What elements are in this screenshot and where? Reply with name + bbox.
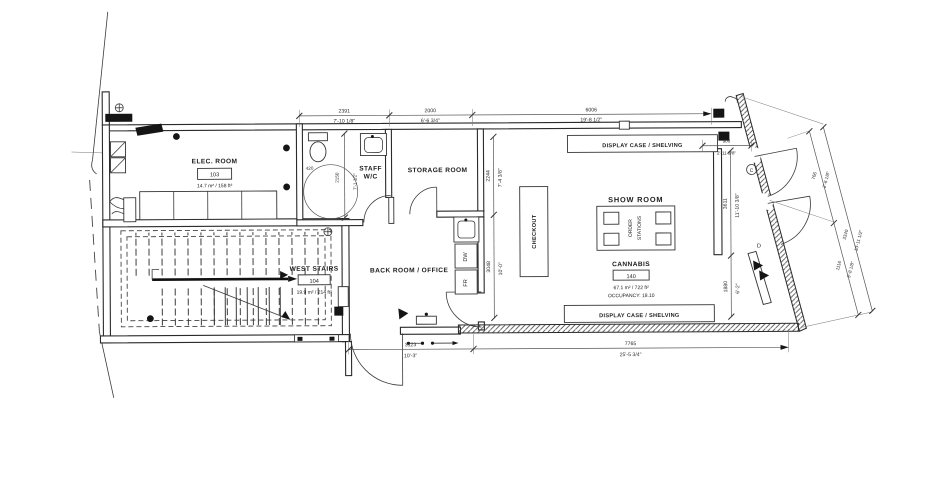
dim-label: 11'-10 3/8" (735, 193, 741, 218)
wc-sink-faucet (371, 135, 374, 138)
dim-label: 2'-6 1/8" (822, 171, 831, 189)
storage-door-swing (410, 187, 437, 214)
column-dot (173, 133, 180, 140)
entry-door-swing (350, 333, 402, 385)
wall-elec-right (296, 124, 303, 220)
wall-showroom-bottom (458, 323, 798, 333)
door-tag-c: C (750, 168, 754, 174)
dim-label: 2000 (424, 108, 436, 114)
dim-arrow (781, 345, 789, 350)
dim-label: 19'-8 1/2" (580, 117, 602, 123)
order-station (656, 212, 671, 224)
dim-label: 6006 (585, 107, 597, 113)
dishwasher-label: DW (463, 252, 469, 262)
dim-label: 420 (306, 166, 314, 171)
window-display-case (748, 251, 771, 304)
dim-label: 6'-6 3/4" (421, 118, 440, 124)
stair-arrowhead (288, 276, 297, 282)
elec-room-name: ELEC. ROOM (192, 158, 238, 165)
elec-panel-3 (124, 198, 136, 222)
dim-label: 2'-11 3/8" (717, 151, 736, 156)
west-stairs-number: 104 (309, 279, 318, 285)
dim-label: 7'-10 1/8" (333, 119, 355, 125)
ext-line (770, 200, 834, 222)
dim-label: 7'-1 1/2" (353, 173, 358, 190)
staff-wc-label-2: W/C (364, 173, 378, 180)
elec-room-number: 103 (210, 172, 219, 178)
dim-label: 3123 (405, 342, 417, 348)
cannabis-number: 140 (626, 274, 635, 280)
roof-access-bar (105, 114, 132, 122)
ext-line (741, 96, 823, 124)
wall-stairs-right (342, 219, 350, 342)
staff-wc-label-1: STAFF (359, 165, 382, 172)
column-dot (283, 145, 290, 152)
wall-showroom-fin (713, 149, 722, 255)
dim-line-fin (730, 151, 731, 317)
toilet-tank (308, 133, 327, 141)
wall-backroom-bottom (400, 327, 460, 334)
floor-plan-sheet: 2391 7'-10 1/8" 2000 6'-6 3/4" 6006 19'-… (0, 0, 930, 500)
device-box (334, 307, 343, 316)
elec-counter (140, 191, 277, 220)
west-stairs-name: WEST STAIRS (290, 266, 339, 273)
stair-treads-lower-solid (205, 287, 290, 325)
small-table (416, 316, 436, 324)
wall-right-slanted (736, 93, 806, 331)
dim-tick (869, 308, 875, 314)
dim-line-right-outer (823, 127, 872, 311)
dim-label: 1116 (835, 260, 842, 271)
dim-label: 2391 (338, 109, 350, 115)
cannabis-occupancy: OCCUPANCY: 18.10 (608, 293, 655, 299)
order-stations-label-2: STATIONS (637, 215, 643, 240)
wc-door-leaf (389, 197, 394, 223)
exit-door-a-swing (767, 148, 797, 196)
display-case-top-label: DISPLAY CASE / SHELVING (602, 143, 682, 149)
dim-tick (820, 124, 826, 130)
revision-cloud (725, 97, 737, 103)
ext-line (802, 312, 872, 327)
door-tag-d: D (757, 243, 761, 249)
dim-label: 25'-5 3/4" (620, 352, 642, 358)
property-line-hook (92, 160, 97, 174)
column-dot (283, 184, 290, 191)
dim-tick (855, 312, 861, 318)
show-room-label: SHOW ROOM (608, 195, 663, 204)
dim-label: 10'-3" (404, 353, 417, 359)
dim-label: 3340 (842, 229, 850, 241)
wall-storage-right (477, 129, 483, 212)
dim-label: 766 (811, 171, 818, 180)
wc-door-swing (364, 195, 391, 222)
dim-label: 7765 (625, 341, 637, 347)
order-station (656, 233, 671, 245)
dim-label: 2244 (486, 170, 492, 182)
backroom-door-swing (446, 292, 481, 327)
wall-wc-bottom (297, 220, 363, 226)
dim-arrow (703, 111, 711, 116)
floor-drain-symbol (398, 308, 408, 319)
column-on-wall (619, 121, 629, 129)
checkout-label: CHECKOUT (532, 214, 538, 248)
storage-room-label: STORAGE ROOM (408, 167, 468, 174)
dim-label: 1880 (723, 281, 729, 293)
cannabis-name: CANNABIS (612, 261, 650, 268)
order-station (604, 233, 619, 245)
dim-label: 7'-4 3/8" (498, 168, 504, 187)
column-square (713, 109, 724, 118)
setback-line (71, 152, 102, 153)
dim-label: 10'-11 1/2" (853, 229, 863, 251)
dim-label: 3048 (486, 261, 492, 273)
dim-tick (806, 128, 812, 134)
dim-tick (831, 220, 837, 226)
toilet-bowl (310, 142, 326, 162)
order-station (604, 212, 619, 224)
dim-line-top (299, 114, 711, 116)
back-room-label: BACK ROOM / OFFICE (370, 267, 449, 274)
stair-stringer (152, 279, 288, 280)
threshold-mark-right (329, 337, 334, 341)
backroom-sink-faucet (464, 218, 467, 221)
hose-cabinet (338, 287, 348, 307)
wc-turning-circle (304, 165, 358, 219)
dim-label: 3'-8 1/8" (846, 260, 855, 278)
west-stairs-area: 19.9 m² / 214 ft² (297, 290, 333, 296)
dim-label: 3611 (723, 198, 729, 209)
small-table-dot (425, 313, 428, 316)
elec-room-area: 14.7 m² / 158 ft² (197, 183, 233, 189)
dim-label: 2150 (335, 172, 340, 183)
wall-left (102, 125, 110, 343)
display-case-bottom-label: DISPLAY CASE / SHELVING (599, 313, 679, 319)
property-line-dashed (90, 180, 100, 332)
ext-line (787, 130, 811, 138)
fire-symbol (115, 104, 123, 112)
column-dot (147, 315, 154, 322)
dim-line-interior (493, 137, 494, 318)
fire-symbol (324, 228, 332, 236)
fridge-label: FR (463, 279, 469, 287)
cannabis-area: 67.1 m² / 722 ft² (614, 285, 650, 291)
wall-storage-bottom (437, 211, 484, 217)
floor-plan-drawing: 2391 7'-10 1/8" 2000 6'-6 3/4" 6006 19'-… (0, 0, 930, 500)
exit-door-b-swing (781, 196, 811, 244)
dim-label: 10'-0" (498, 262, 504, 275)
threshold-mark-left (297, 337, 302, 341)
dim-label: 6'-2" (735, 283, 741, 294)
order-stations-label-1: ORDER (628, 219, 634, 237)
dim-label: 900 (723, 139, 731, 144)
